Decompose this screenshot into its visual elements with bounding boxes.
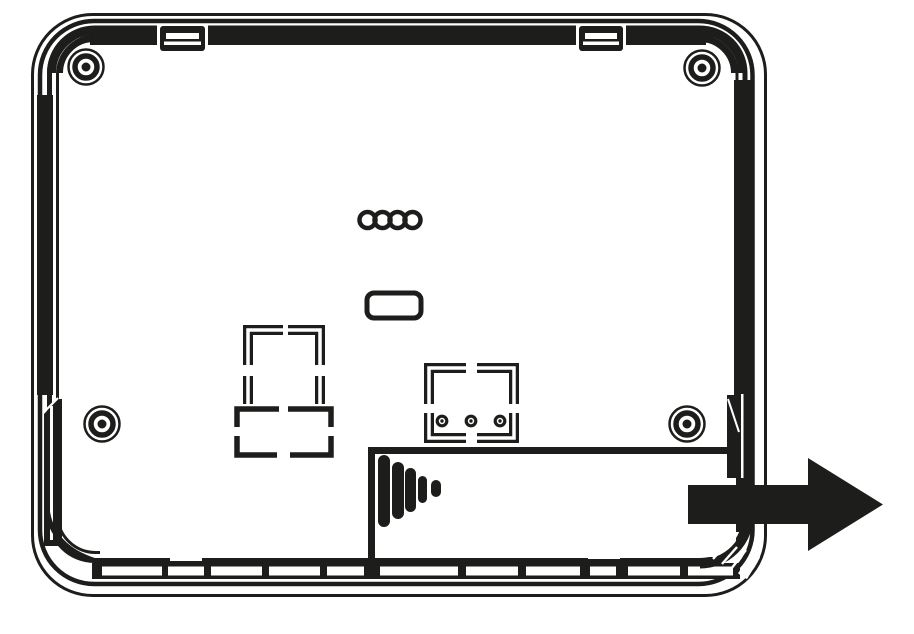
connector-pin-2 bbox=[466, 416, 476, 426]
battery-cover-face bbox=[374, 451, 736, 557]
connector-pin-3 bbox=[495, 416, 505, 426]
bottom-tab-mark-right bbox=[588, 556, 620, 559]
battery-cover-left-edge bbox=[368, 447, 375, 563]
battery-cover bbox=[368, 447, 738, 563]
screw-boss-bottom-left bbox=[85, 407, 120, 442]
screw-boss-top-right bbox=[685, 51, 720, 86]
mounting-tab-top-left bbox=[157, 24, 208, 51]
diagram-canvas bbox=[0, 0, 914, 634]
connector-pin-1 bbox=[437, 416, 447, 426]
screw-boss-top-left bbox=[69, 50, 104, 85]
battery-cover-top-edge bbox=[368, 447, 738, 454]
mounting-tab-top-right bbox=[576, 24, 626, 51]
device-rear-diagram bbox=[0, 0, 914, 634]
bottom-tab-mark-left bbox=[170, 558, 202, 561]
screw-boss-bottom-right bbox=[670, 407, 705, 442]
socket-left-base bbox=[237, 409, 331, 455]
left-edge-band bbox=[37, 95, 53, 395]
